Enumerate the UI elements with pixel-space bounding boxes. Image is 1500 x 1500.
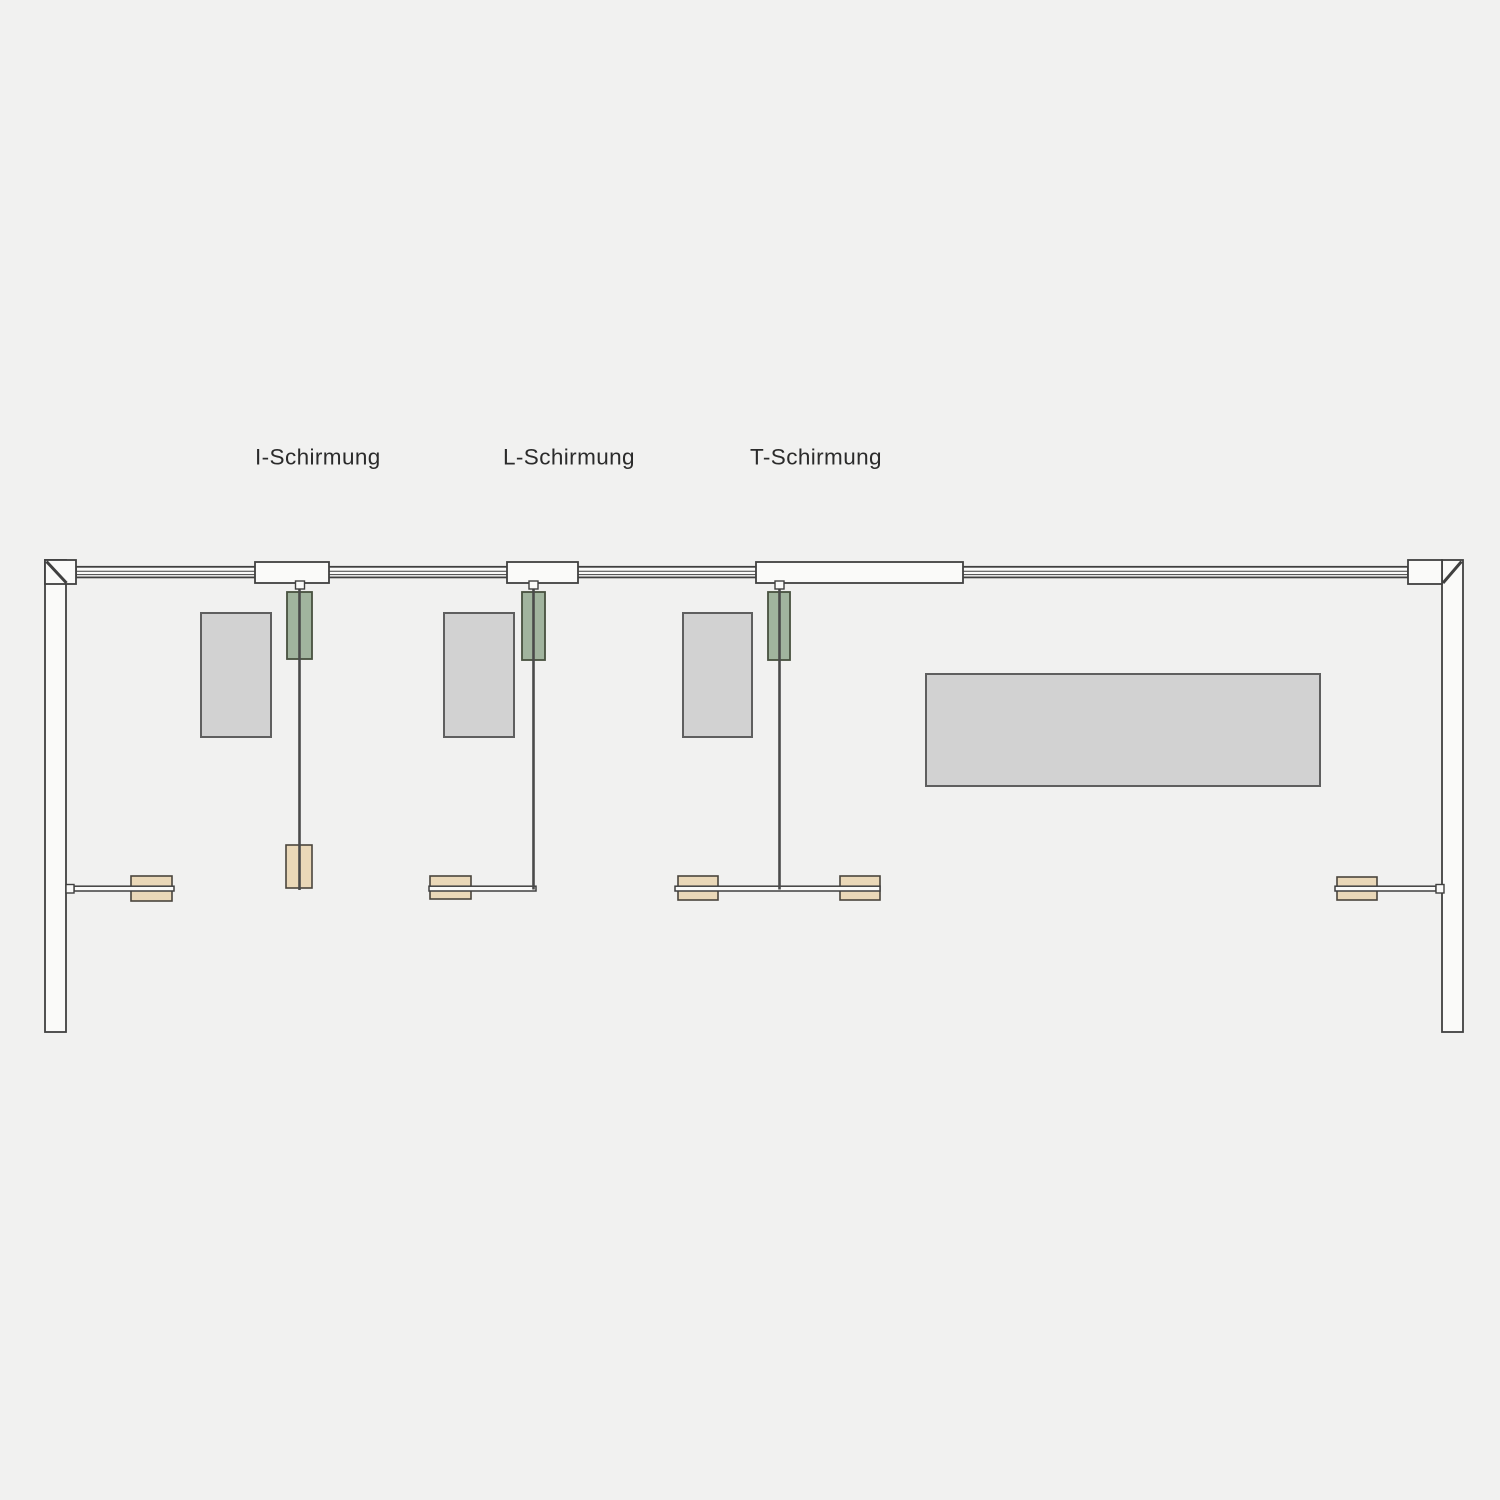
left-post-arm-connector xyxy=(66,885,74,894)
t-schirmung-label: T-Schirmung xyxy=(750,445,882,470)
t-schirmung-rail-connector xyxy=(756,562,963,583)
left-post xyxy=(45,560,66,1032)
panel-1 xyxy=(201,613,271,737)
panel-3 xyxy=(683,613,752,737)
panel-large xyxy=(926,674,1320,786)
left-wall-arm xyxy=(74,886,174,891)
panel-2 xyxy=(444,613,514,737)
i-schirmung-label: I-Schirmung xyxy=(255,445,381,470)
schirmung-diagram: I-Schirmung L-Schirmung T-Schirmung xyxy=(0,0,1500,1500)
t-schirmung-stem-connector xyxy=(775,581,784,589)
l-schirmung-arm xyxy=(429,886,536,891)
t-schirmung-arm xyxy=(675,886,880,891)
i-schirmung-rail-connector xyxy=(255,562,329,583)
i-schirmung-stem-connector xyxy=(296,581,305,589)
l-schirmung-label: L-Schirmung xyxy=(503,445,635,470)
l-schirmung-stem-connector xyxy=(529,581,538,589)
right-post xyxy=(1442,560,1463,1032)
l-schirmung-rail-connector xyxy=(507,562,578,583)
right-corner-bracket xyxy=(1408,560,1442,584)
right-post-arm-connector xyxy=(1436,885,1444,894)
right-wall-arm xyxy=(1335,886,1436,891)
